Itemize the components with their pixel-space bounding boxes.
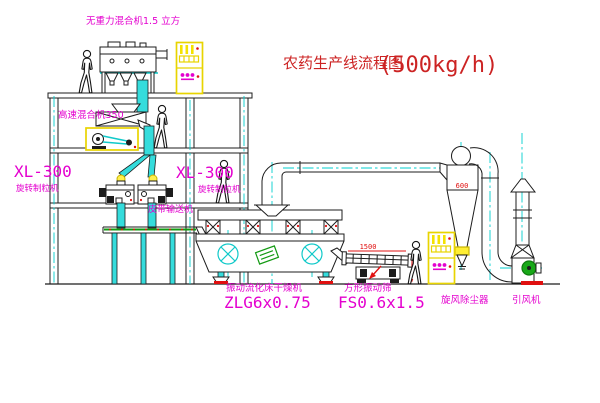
cyclone-collector-box <box>455 247 469 255</box>
conveyor-leg <box>141 233 146 284</box>
fluid-bed-dryer <box>196 210 352 284</box>
sieve-length-dimension: 1500 <box>360 243 377 251</box>
gravity-mixer-label: 无重力混合机1.5 立方 <box>86 15 180 27</box>
control-cabinet-ground <box>429 233 455 284</box>
floor-slab-top <box>48 93 252 98</box>
exhaust-stack <box>511 179 535 258</box>
belt-conveyor-label: 皮带输送机 <box>148 203 193 215</box>
dryer-model-label: ZLG6x0.75 <box>224 293 311 312</box>
stack-cap <box>511 179 535 192</box>
worker-figure-second-floor <box>154 105 167 148</box>
granulator-mid-name-label: 旋转制粒机 <box>198 184 241 195</box>
worker-figure-top-floor <box>79 50 92 93</box>
cyclone-outlet-port <box>452 147 471 166</box>
cyclone-inlet-reducer <box>440 163 447 180</box>
high-speed-mixer-label: 高速混合机350 <box>58 109 124 121</box>
granulator-left <box>99 175 134 204</box>
granulator-motor <box>166 188 173 197</box>
fan-base <box>521 281 543 285</box>
diagram-canvas: 农药生产线流程图 (500kg/h) 无重力混合机1.5 立方 高速混合机350… <box>0 0 600 403</box>
cad-flow-diagram: 农药生产线流程图 (500kg/h) 无重力混合机1.5 立方 高速混合机350… <box>0 0 600 403</box>
y-splitter-chute <box>119 155 156 177</box>
conveyor-leg <box>170 233 175 284</box>
feed-chute-mixer <box>137 80 148 112</box>
induced-draft-fan <box>512 258 543 285</box>
control-cabinet-top <box>177 43 203 94</box>
conveyor-leg <box>112 233 117 284</box>
cyclone-width-dimension: 600 <box>456 182 469 190</box>
granulator-right <box>138 175 173 204</box>
granulator-motor <box>99 188 106 197</box>
dryer-foot-right <box>318 272 334 284</box>
exhaust-duct <box>254 161 447 216</box>
fan-name-label: 引风机 <box>512 294 541 306</box>
granulator-left-name-label: 旋转制粒机 <box>16 183 59 194</box>
discharge-chute-mixer <box>144 126 154 155</box>
title-capacity: (500kg/h) <box>379 53 498 78</box>
gravity-free-mixer <box>100 42 167 93</box>
granulator-chute-left <box>117 203 125 228</box>
granulator-left-model-label: XL-300 <box>14 162 72 181</box>
sieve-model-label: FS0.6x1.5 <box>338 293 425 312</box>
cyclone-name-label: 旋风除尘器 <box>441 294 489 306</box>
granulator-mid-model-label: XL-300 <box>176 163 234 182</box>
vibrating-sieve <box>342 251 413 283</box>
